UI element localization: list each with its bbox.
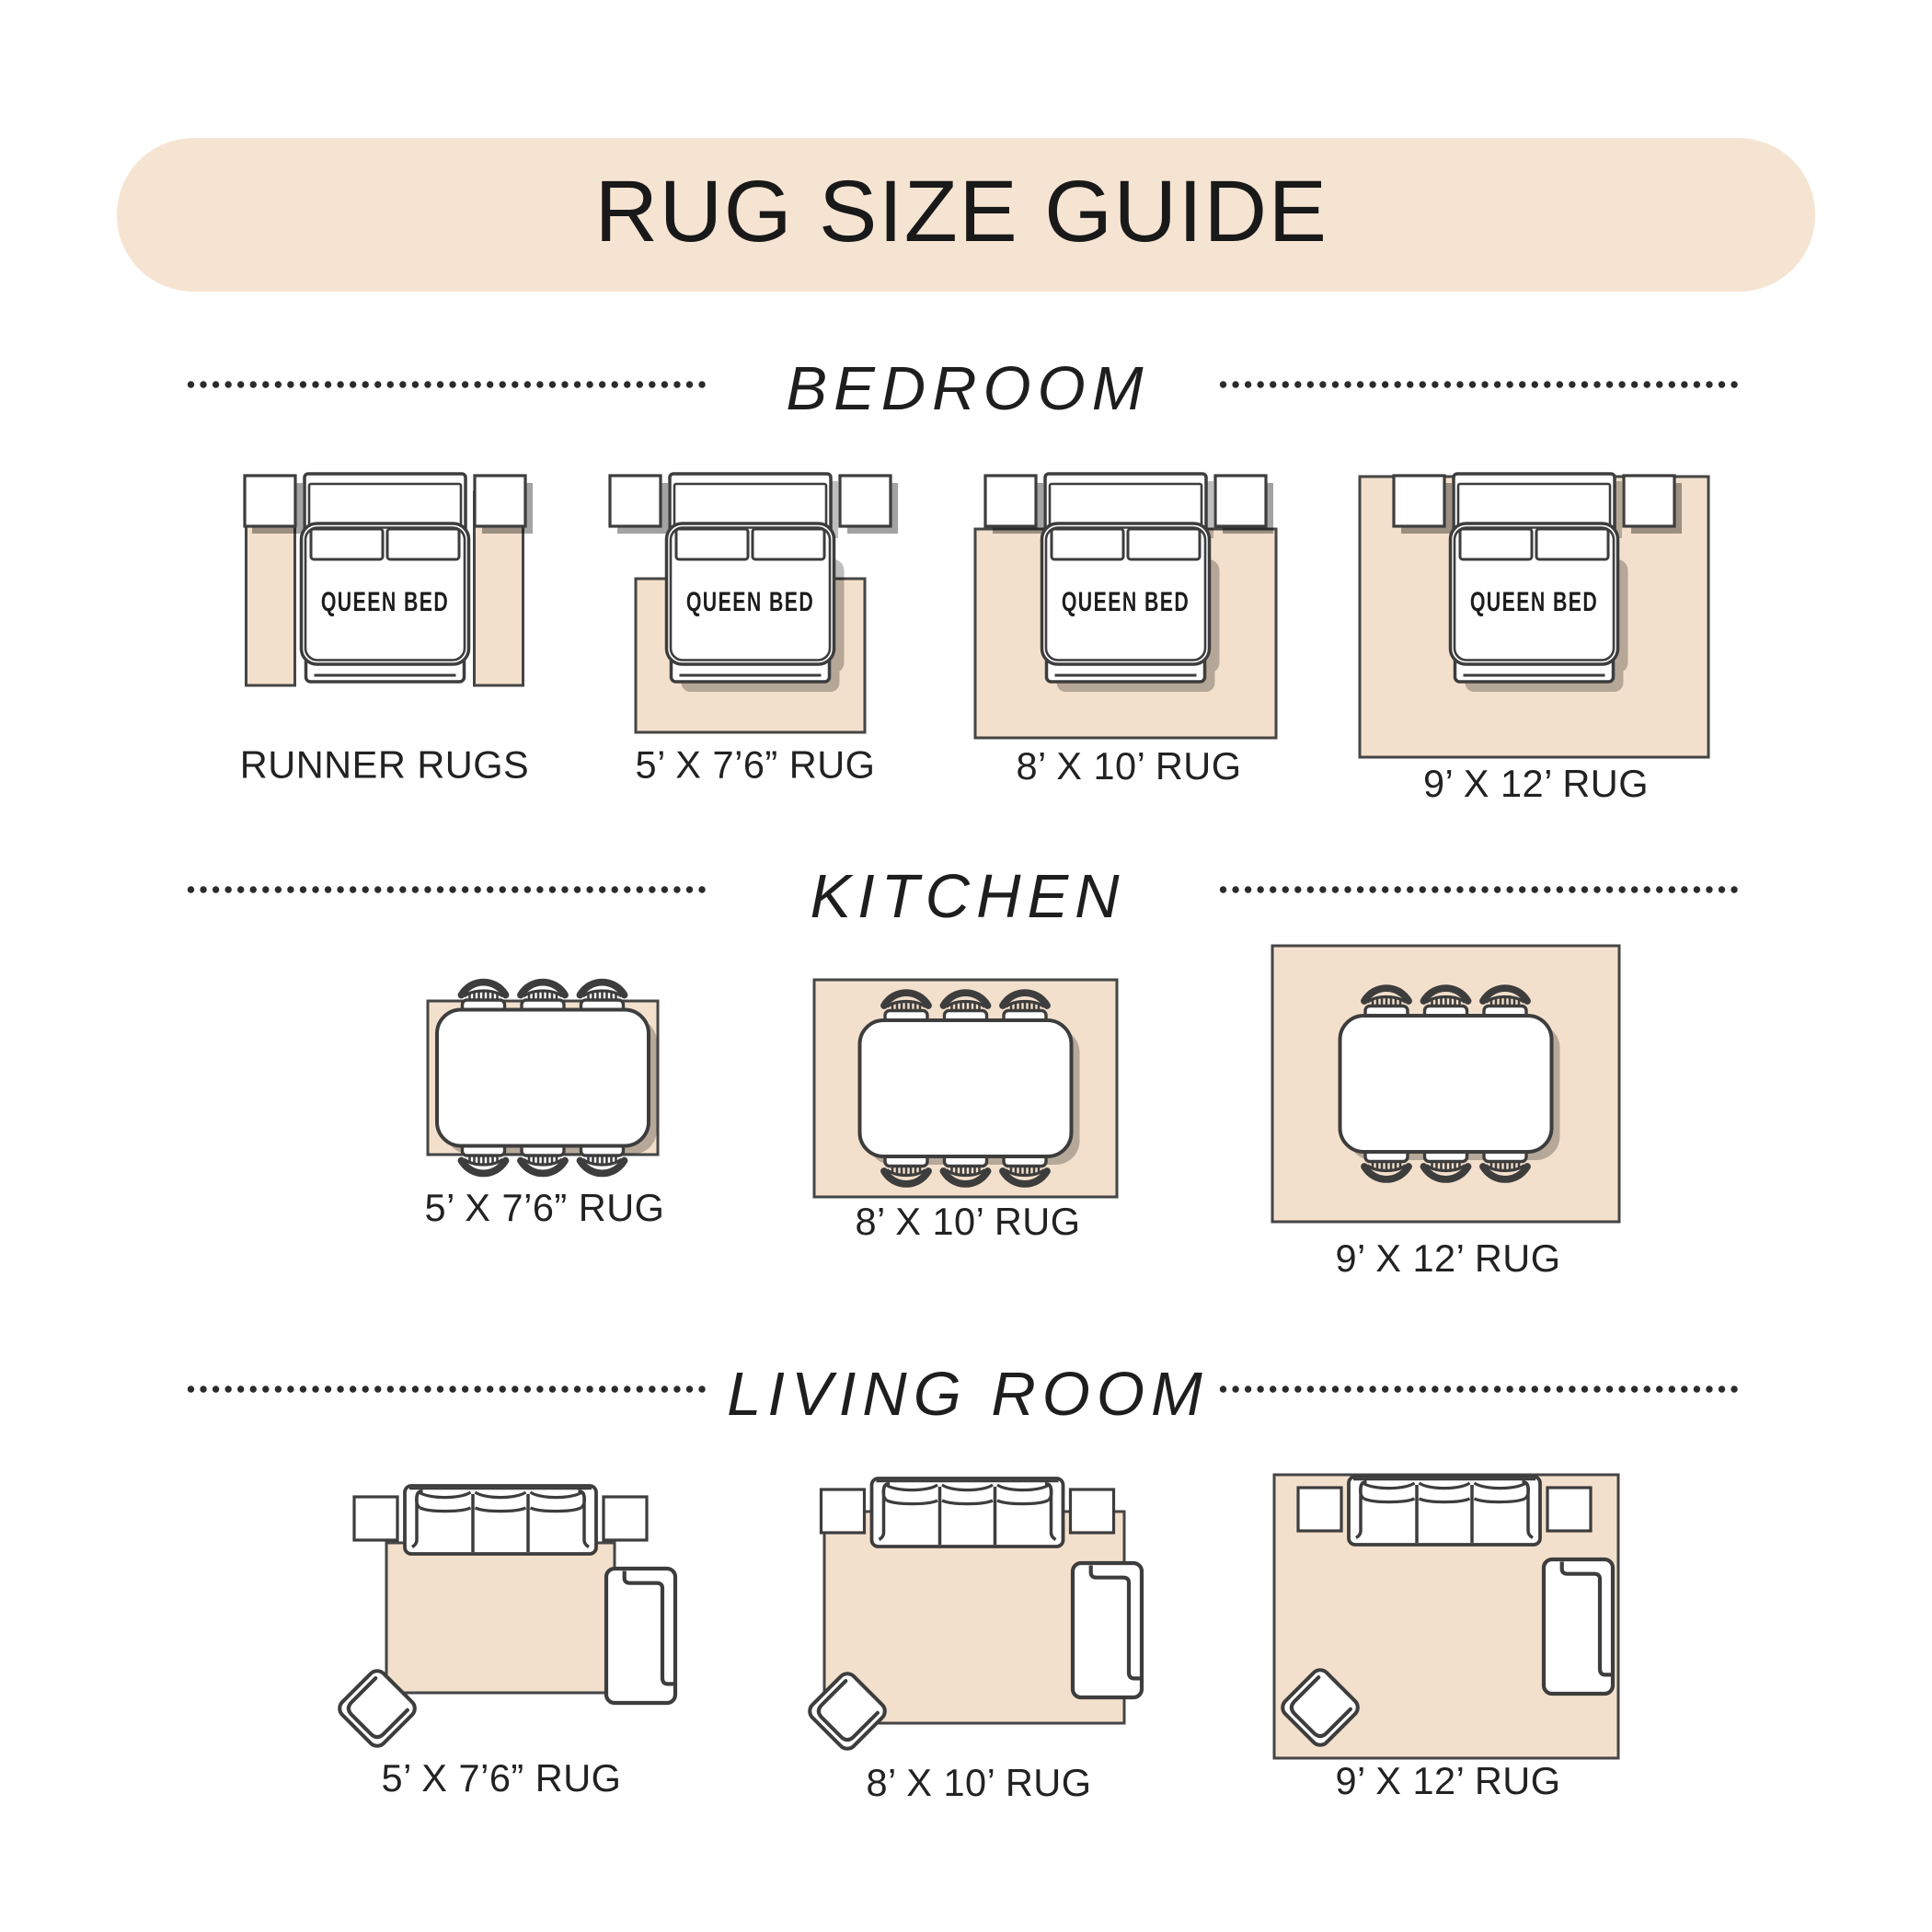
svg-text:8’ X 10’ RUG: 8’ X 10’ RUG xyxy=(1016,744,1241,788)
svg-text:5’ X 7’6” RUG: 5’ X 7’6” RUG xyxy=(425,1186,665,1229)
svg-text:5’ X 7’6” RUG: 5’ X 7’6” RUG xyxy=(382,1756,622,1800)
svg-text:9’ X 12’ RUG: 9’ X 12’ RUG xyxy=(1335,1759,1560,1802)
svg-text:8’ X 10’ RUG: 8’ X 10’ RUG xyxy=(855,1200,1080,1243)
svg-text:BEDROOM: BEDROOM xyxy=(786,354,1149,423)
svg-text:9’ X 12’ RUG: 9’ X 12’ RUG xyxy=(1335,1236,1560,1280)
svg-text:9’ X 12’ RUG: 9’ X 12’ RUG xyxy=(1423,762,1649,805)
svg-text:RUNNER RUGS: RUNNER RUGS xyxy=(240,743,529,787)
svg-text:5’ X 7’6” RUG: 5’ X 7’6” RUG xyxy=(636,743,876,787)
svg-text:8’ X 10’ RUG: 8’ X 10’ RUG xyxy=(866,1761,1091,1804)
svg-text:RUG SIZE GUIDE: RUG SIZE GUIDE xyxy=(595,163,1328,260)
svg-text:LIVING ROOM: LIVING ROOM xyxy=(727,1360,1209,1429)
svg-text:KITCHEN: KITCHEN xyxy=(810,862,1125,931)
